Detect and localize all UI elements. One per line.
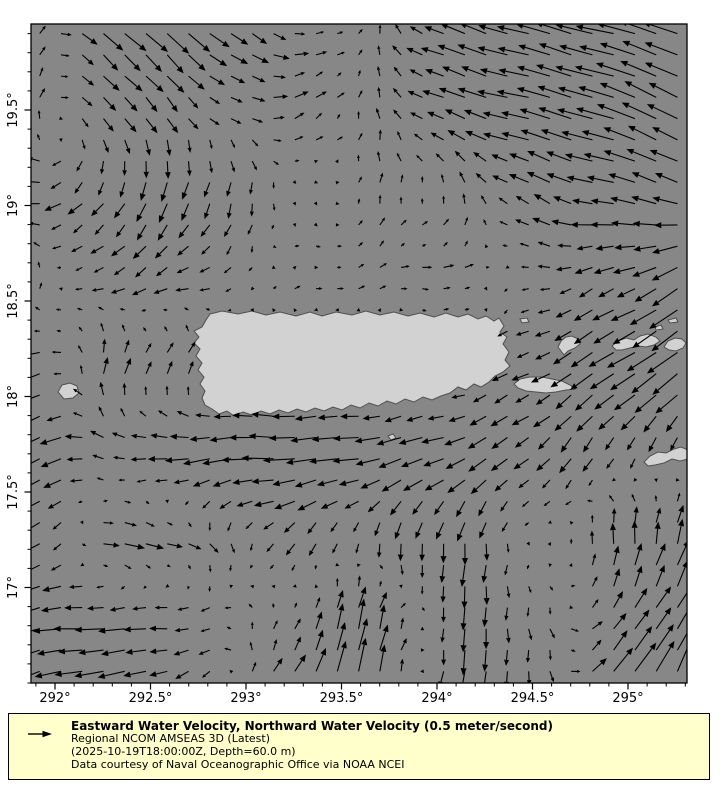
- velocity-quiver-map: 292°292.5°293°293.5°294°294.5°295°17°17.…: [0, 0, 720, 710]
- y-tick-label: 19°: [6, 194, 21, 217]
- x-tick-label: 294°: [421, 691, 452, 706]
- y-tick-label: 18°: [6, 385, 21, 408]
- y-tick-label: 17.5°: [6, 474, 21, 509]
- island-cay-north: [520, 318, 529, 323]
- x-tick-label: 294.5°: [511, 691, 555, 706]
- legend-timestamp: (2025-10-19T18:00:00Z, Depth=60.0 m): [71, 746, 553, 759]
- x-tick-label: 295°: [612, 691, 643, 706]
- y-tick-label: 18.5°: [6, 283, 21, 318]
- x-tick-label: 293°: [230, 691, 261, 706]
- y-tick-label: 17°: [6, 576, 21, 599]
- x-tick-label: 292°: [39, 691, 70, 706]
- legend-box: Eastward Water Velocity, Northward Water…: [8, 713, 710, 780]
- x-tick-label: 293.5°: [320, 691, 364, 706]
- legend-credit: Data courtesy of Naval Oceanographic Off…: [71, 759, 553, 772]
- reference-arrow-icon: [27, 729, 57, 739]
- figure: 292°292.5°293°293.5°294°294.5°295°17°17.…: [0, 0, 720, 800]
- legend-model: Regional NCOM AMSEAS 3D (Latest): [71, 733, 553, 746]
- x-tick-label: 292.5°: [129, 691, 173, 706]
- y-tick-label: 19.5°: [6, 92, 21, 127]
